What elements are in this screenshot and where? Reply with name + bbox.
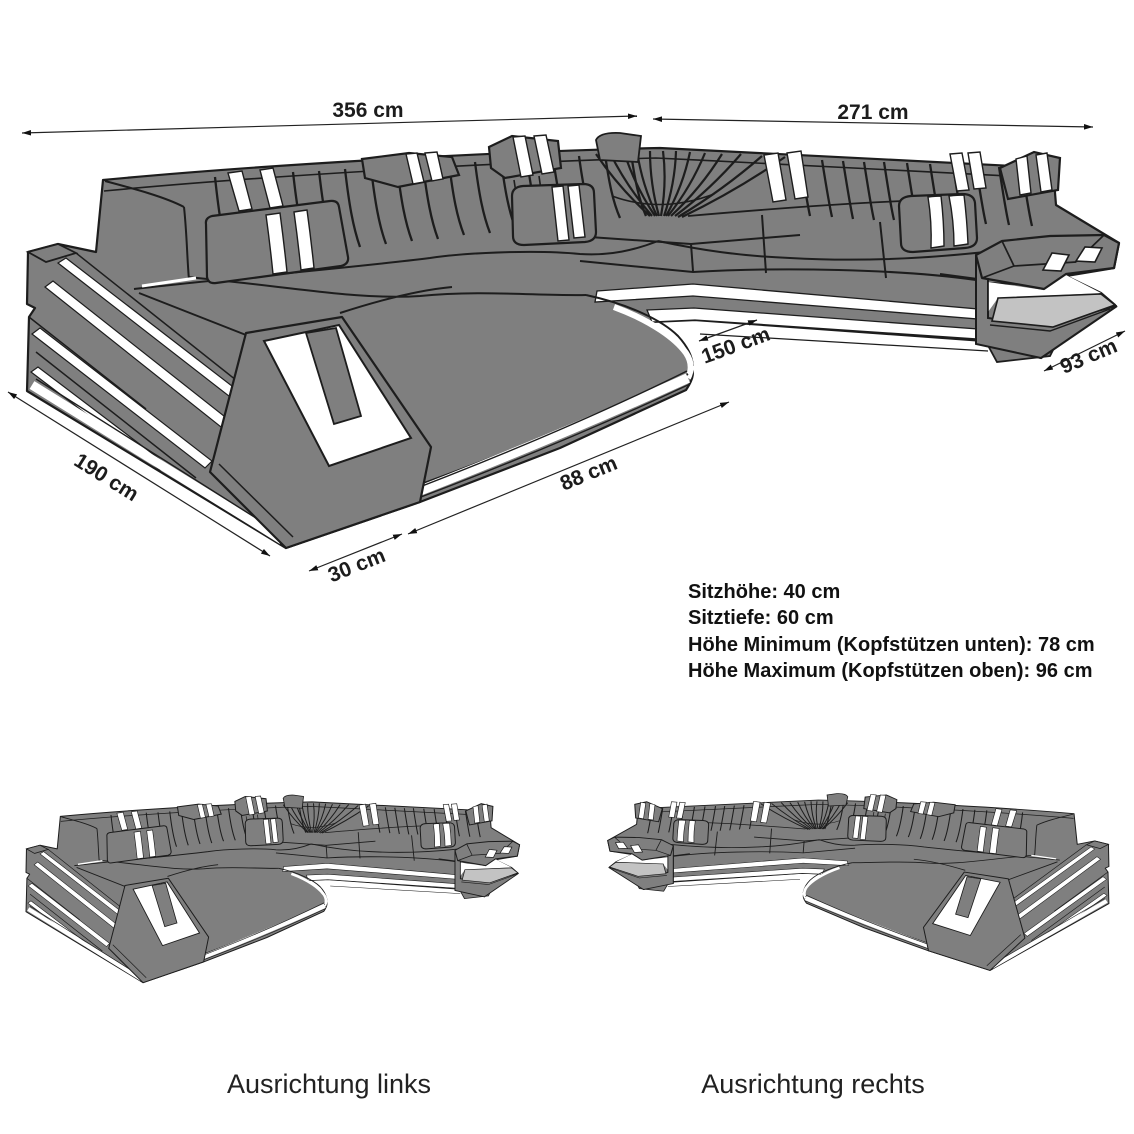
svg-text:356 cm: 356 cm — [332, 99, 403, 122]
svg-text:150 cm: 150 cm — [698, 323, 773, 369]
svg-text:Ausrichtung rechts: Ausrichtung rechts — [701, 1069, 925, 1099]
svg-text:271 cm: 271 cm — [837, 101, 908, 124]
svg-text:Ausrichtung links: Ausrichtung links — [227, 1069, 431, 1099]
svg-text:Sitzhöhe: 40 cm: Sitzhöhe: 40 cm — [688, 581, 840, 603]
svg-text:Höhe Minimum (Kopfstützen unte: Höhe Minimum (Kopfstützen unten): 78 cm — [688, 634, 1095, 656]
svg-text:190 cm: 190 cm — [70, 449, 143, 506]
svg-text:88 cm: 88 cm — [557, 452, 621, 496]
svg-text:Sitztiefe: 60 cm: Sitztiefe: 60 cm — [688, 607, 834, 629]
svg-text:30 cm: 30 cm — [325, 544, 389, 587]
svg-text:Höhe Maximum (Kopfstützen oben: Höhe Maximum (Kopfstützen oben): 96 cm — [688, 660, 1092, 682]
